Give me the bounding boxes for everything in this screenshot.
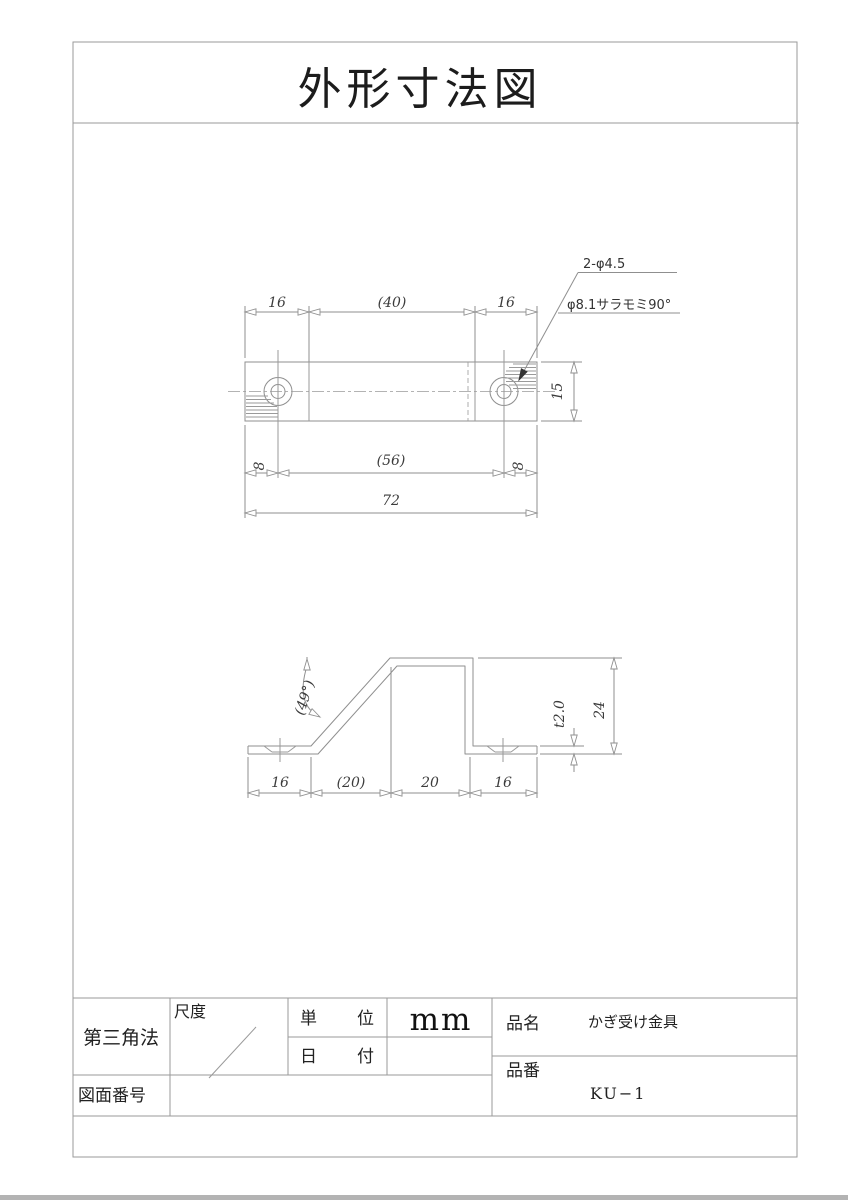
callout-leader-line	[519, 273, 578, 381]
dim-72: 72	[382, 493, 400, 509]
dim-arrowhead	[493, 470, 504, 476]
dim-40: (40)	[378, 295, 407, 311]
drawing-number-label: 図面番号	[78, 1086, 146, 1106]
scan-edge	[0, 1195, 848, 1200]
callout-countersink: φ8.1サラモミ90°	[567, 298, 671, 313]
dim-arrowhead	[571, 735, 577, 746]
page-title: 外形寸法図	[298, 64, 543, 115]
top-view: 16 (40) 16 15 8 (56) 8 72	[228, 295, 582, 518]
dim-arrowhead	[470, 790, 481, 796]
unit-value: mm	[410, 1002, 473, 1038]
dim-arrowhead	[245, 510, 256, 516]
dim-arrowhead	[309, 309, 320, 315]
dim-8-left: 8	[252, 461, 268, 470]
frame-border	[73, 42, 797, 1157]
dim-16-b: 16	[494, 775, 512, 791]
dim-arrowhead	[459, 790, 470, 796]
product-number-label: 品番	[506, 1061, 540, 1081]
drawing-sheet: 外形寸法図	[0, 0, 848, 1200]
side-view: 16 (20) 20 16 (49°) t2.0 24	[248, 657, 622, 798]
dim-20: 20	[420, 775, 439, 791]
dim-arrowhead	[380, 790, 391, 796]
dim-arrowhead	[526, 510, 537, 516]
dim-thickness: t2.0	[552, 700, 568, 728]
top-view-dimension-lines	[245, 306, 582, 518]
dim-16-left: 16	[268, 295, 286, 311]
product-name-label: 品名	[506, 1014, 540, 1034]
dim-16-a: 16	[271, 775, 289, 791]
dim-arrowhead	[571, 754, 577, 765]
dim-arrowhead	[504, 470, 515, 476]
dim-arrowhead	[571, 410, 577, 421]
dim-arrowhead	[526, 790, 537, 796]
dim-arrowhead	[571, 362, 577, 373]
drawing-frame	[73, 42, 799, 1157]
scale-slash	[209, 1027, 256, 1078]
date-label: 日付	[300, 1047, 414, 1067]
dim-arrowhead	[245, 470, 256, 476]
dim-20-ref: (20)	[337, 775, 366, 791]
dim-8-right: 8	[511, 461, 527, 470]
scale-label: 尺度	[174, 1002, 206, 1021]
dim-arrowhead	[526, 470, 537, 476]
title-block: 第三角法 尺度 単位 mm 日付 品名 かぎ受け金具 品番 KU−1 図面番号	[73, 998, 797, 1116]
dim-arrowhead	[298, 309, 309, 315]
callout-hole-count: 2-φ4.5	[583, 257, 625, 272]
hatch-bottom-left	[246, 396, 278, 417]
dim-arrowhead	[309, 709, 322, 720]
dim-arrowhead	[267, 470, 278, 476]
countersink-section-left	[264, 738, 296, 762]
drawing-canvas: 外形寸法図	[0, 0, 848, 1200]
product-name-value: かぎ受け金具	[588, 1013, 678, 1031]
dim-arrowhead	[611, 743, 617, 754]
dim-arrowhead	[526, 309, 537, 315]
dim-arrowhead	[475, 309, 486, 315]
dim-16-right: 16	[497, 295, 515, 311]
dim-arrowhead	[278, 470, 289, 476]
dim-arrowhead	[248, 790, 259, 796]
product-number-value: KU−1	[590, 1084, 646, 1103]
unit-label: 単位	[300, 1009, 414, 1029]
dim-15: 15	[550, 383, 566, 401]
dim-arrowhead	[611, 658, 617, 669]
part-profile-inner	[248, 666, 537, 754]
dim-arrowhead	[391, 790, 402, 796]
dim-24: 24	[592, 701, 608, 720]
projection-method-label: 第三角法	[83, 1027, 159, 1049]
dim-56: (56)	[377, 453, 406, 469]
dim-arrowhead	[311, 790, 322, 796]
dim-arrowhead	[245, 309, 256, 315]
countersink-section-right	[487, 738, 519, 762]
dim-arrowhead	[304, 659, 310, 670]
dim-arrowhead	[300, 790, 311, 796]
dim-arrowhead	[464, 309, 475, 315]
